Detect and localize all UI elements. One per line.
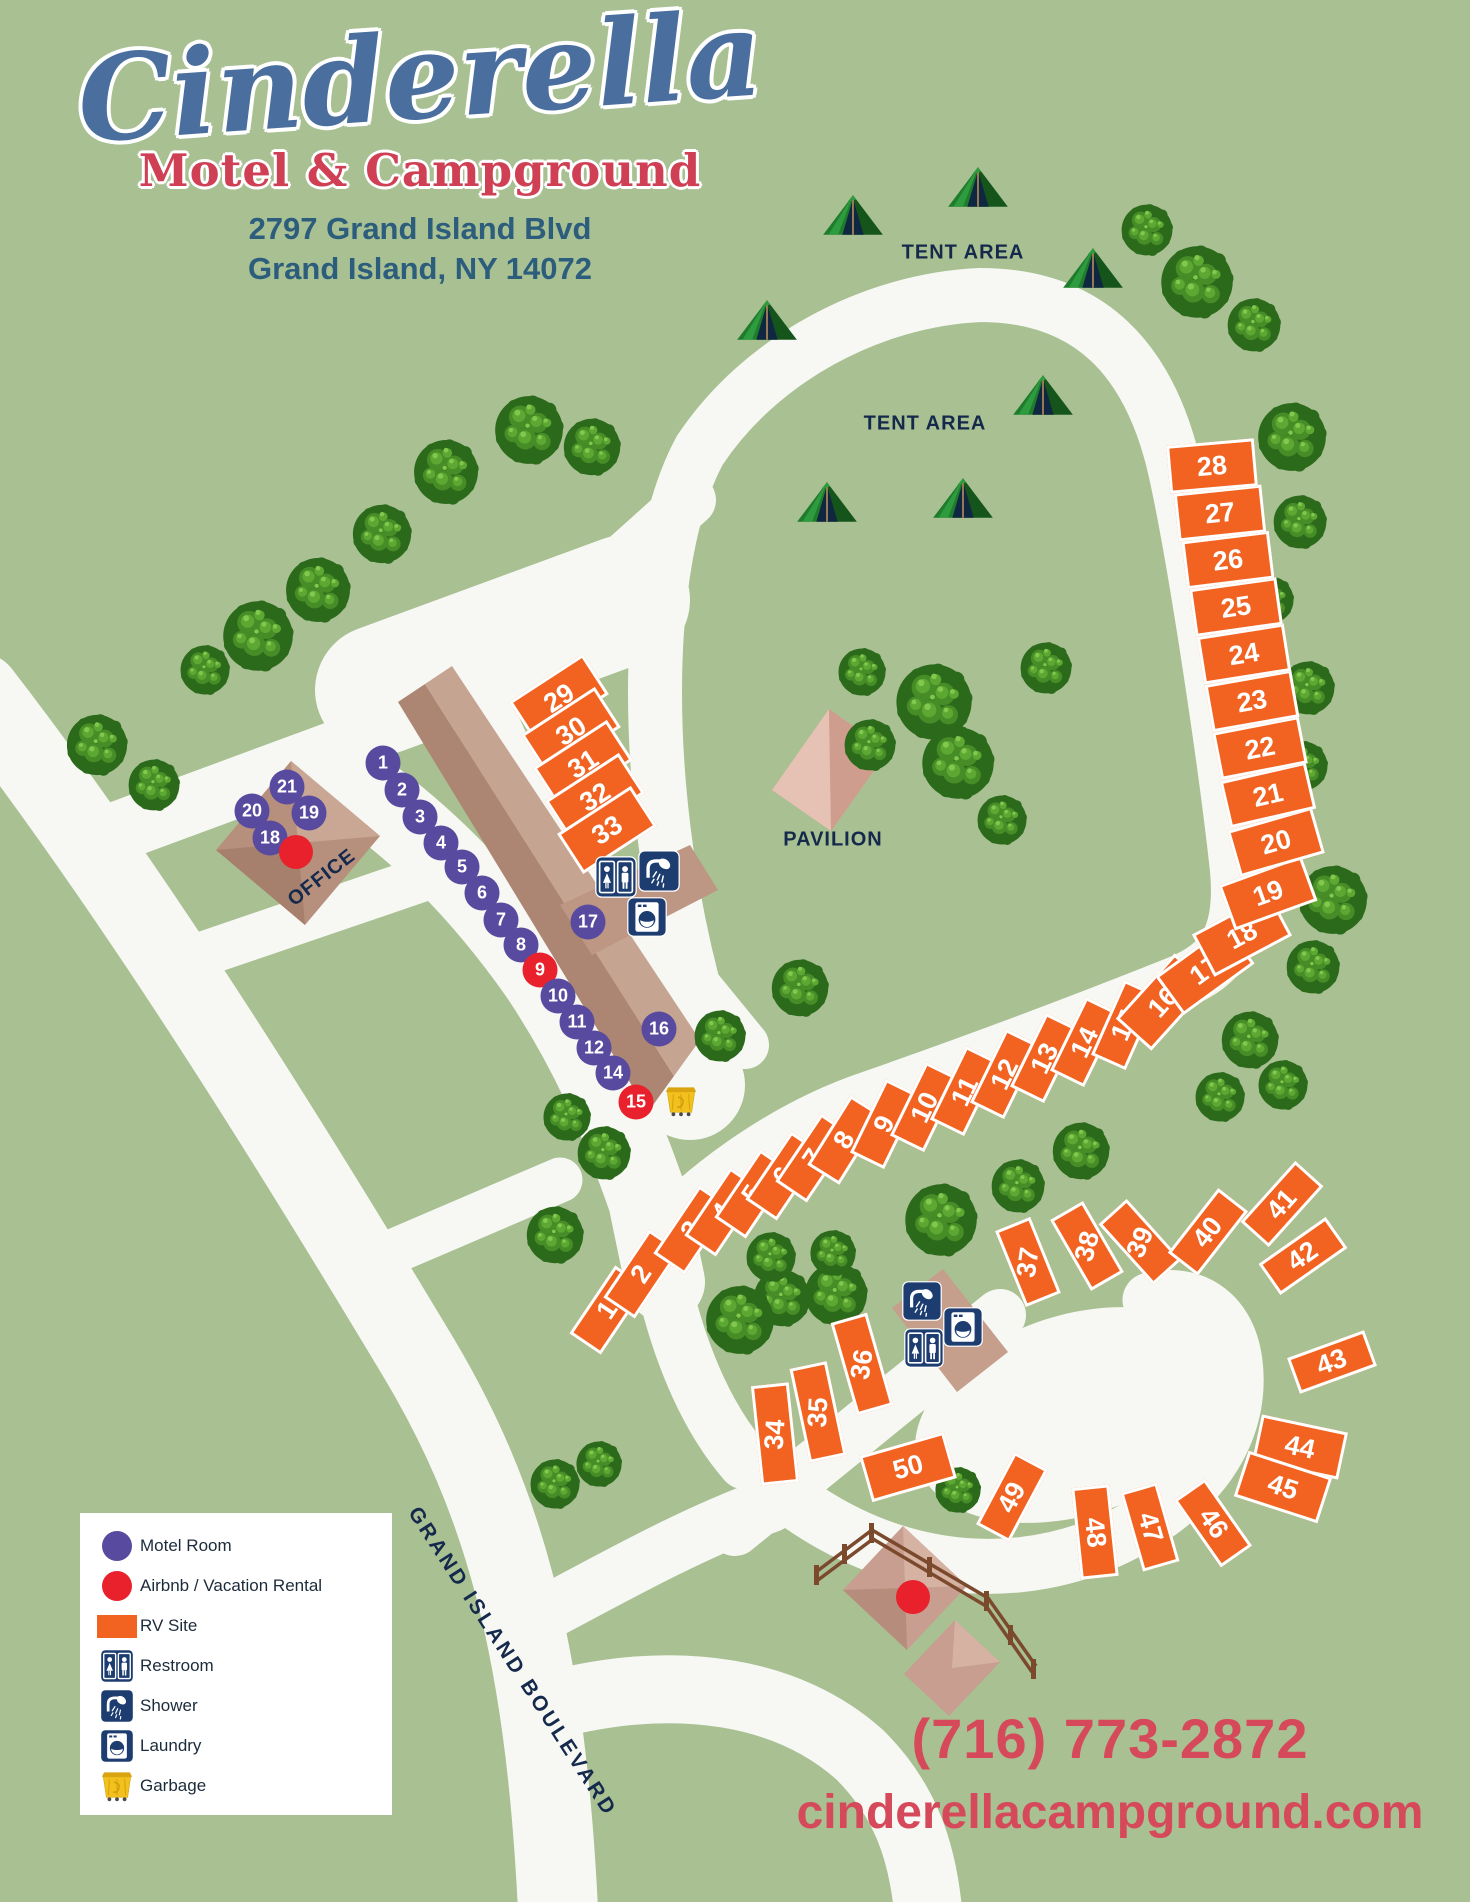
legend-label: RV Site	[140, 1616, 197, 1636]
legend-label: Laundry	[140, 1736, 201, 1756]
address-line1: 2797 Grand Island Blvd	[30, 209, 810, 249]
tent-area-label-north: TENT AREA	[902, 242, 1025, 265]
pavilion-label: PAVILION	[783, 829, 882, 852]
legend-item-garbage: Garbage	[94, 1767, 382, 1805]
legend-label: Airbnb / Vacation Rental	[140, 1576, 322, 1596]
motel-icon	[94, 1531, 140, 1561]
legend-item-restroom: Restroom	[94, 1647, 382, 1685]
address: 2797 Grand Island Blvd Grand Island, NY …	[30, 209, 810, 290]
campground-map: 1234567891011121314151617181920212223242…	[0, 0, 1470, 1902]
airbnb-icon	[94, 1571, 140, 1601]
legend-label: Shower	[140, 1696, 198, 1716]
legend-label: Restroom	[140, 1656, 214, 1676]
legend-item-airbnb: Airbnb / Vacation Rental	[94, 1567, 382, 1605]
contact-block: (716) 773-2872 cinderellacampground.com	[760, 1706, 1460, 1840]
legend: Motel RoomAirbnb / Vacation RentalRV Sit…	[80, 1513, 392, 1815]
airbnb-swatch	[102, 1571, 132, 1601]
legend-item-motel: Motel Room	[94, 1527, 382, 1565]
phone-number: (716) 773-2872	[760, 1706, 1460, 1771]
legend-item-rv: RV Site	[94, 1607, 382, 1645]
address-line2: Grand Island, NY 14072	[30, 249, 810, 289]
laundry-icon	[94, 1729, 140, 1763]
rv-swatch	[97, 1615, 137, 1638]
tent-area-label-inner: TENT AREA	[864, 413, 987, 436]
restroom-icon	[94, 1649, 140, 1683]
pavilion-building	[772, 709, 888, 831]
website-url: cinderellacampground.com	[760, 1785, 1460, 1840]
garbage-icon	[94, 1767, 140, 1805]
motel-swatch	[102, 1531, 132, 1561]
logo-title: Cinderella	[27, 0, 813, 163]
shower-icon	[94, 1689, 140, 1723]
legend-item-shower: Shower	[94, 1687, 382, 1725]
legend-label: Motel Room	[140, 1536, 232, 1556]
logo-block: Cinderella Motel & Campground 2797 Grand…	[30, 18, 810, 290]
legend-item-laundry: Laundry	[94, 1727, 382, 1765]
rv-icon	[94, 1615, 140, 1638]
legend-label: Garbage	[140, 1776, 206, 1796]
